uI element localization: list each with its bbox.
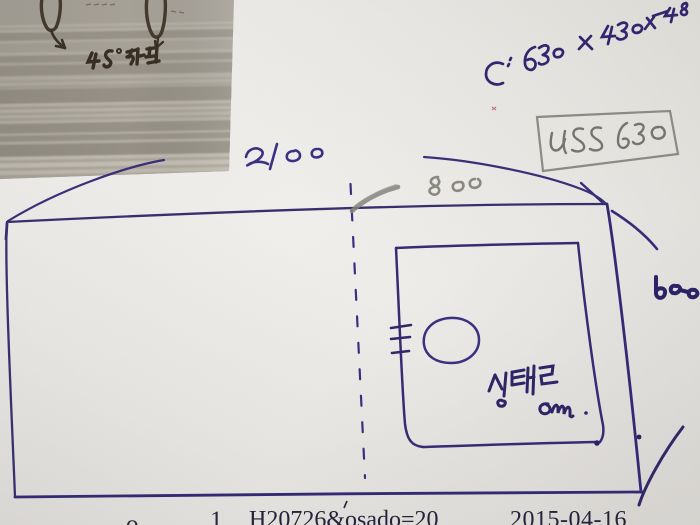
svg-text:H20726&osado=20: H20726&osado=20 bbox=[249, 507, 439, 525]
svg-text:2015-04-16: 2015-04-16 bbox=[510, 507, 627, 525]
svg-text:1: 1 bbox=[210, 507, 223, 525]
svg-text:o: o bbox=[126, 511, 139, 525]
